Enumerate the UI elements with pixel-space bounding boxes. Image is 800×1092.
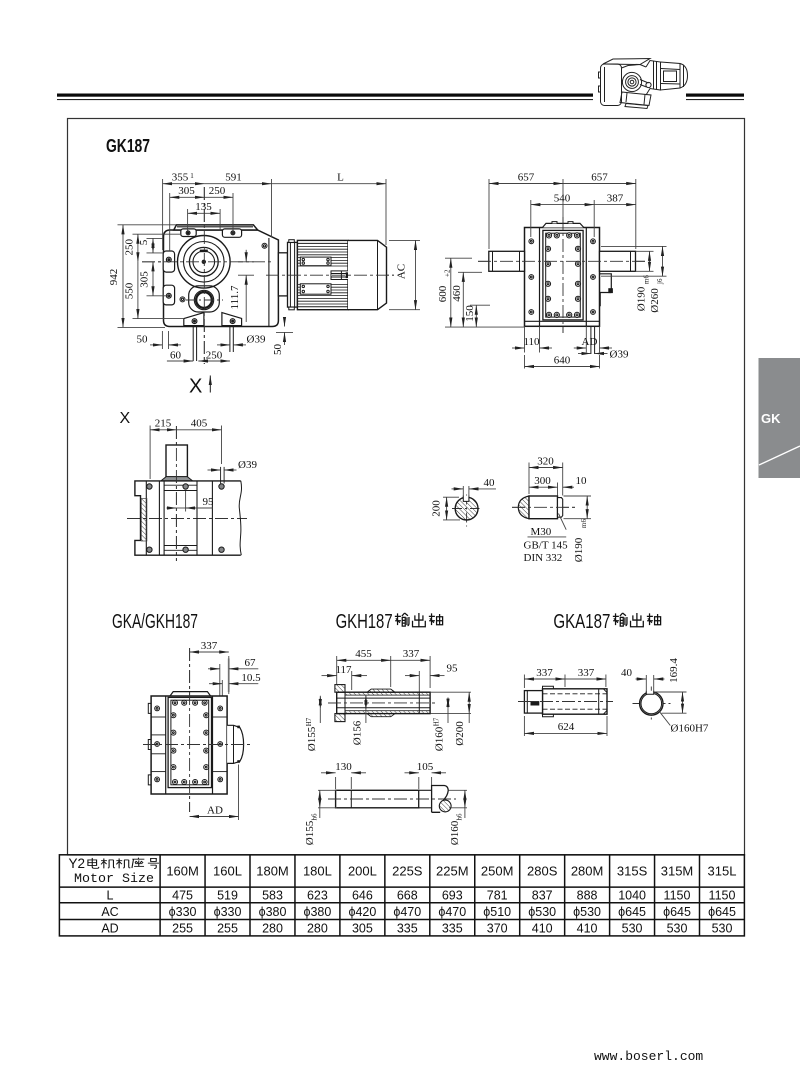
svg-text:130: 130 [335,761,352,773]
svg-text:335: 335 [397,921,418,935]
svg-text:m6: m6 [580,519,588,528]
svg-text:623: 623 [307,889,328,903]
svg-text:550: 550 [124,282,136,299]
svg-text:387: 387 [607,192,624,204]
svg-text:355: 355 [172,172,189,184]
svg-text:1: 1 [190,172,194,180]
svg-text:Ø39: Ø39 [247,334,266,346]
svg-text:337: 337 [578,667,595,679]
svg-text:200: 200 [430,500,442,517]
svg-text:169.4: 169.4 [668,658,680,683]
svg-text:410: 410 [577,921,598,935]
svg-text:250: 250 [206,349,223,361]
svg-text:Ø39: Ø39 [238,459,257,471]
svg-text:Ø39: Ø39 [610,349,629,361]
svg-text:1150: 1150 [709,889,736,903]
svg-text:Ø190: Ø190 [636,286,648,311]
svg-text:h6: h6 [456,813,464,821]
svg-text:117: 117 [335,664,352,676]
svg-text:Ø155: Ø155 [304,820,316,845]
svg-text:305: 305 [139,271,151,288]
svg-text:60: 60 [170,349,182,361]
svg-text:540: 540 [554,192,571,204]
svg-text:888: 888 [577,889,598,903]
svg-text:337: 337 [536,667,553,679]
svg-text:GK: GK [761,411,781,426]
svg-text:624: 624 [558,721,575,733]
svg-text:10.5: 10.5 [241,672,261,684]
svg-text:105: 105 [417,761,434,773]
svg-text:H7: H7 [433,717,441,726]
svg-text:X: X [189,376,202,398]
svg-text:591: 591 [225,172,242,184]
svg-text:ϕ645: ϕ645 [663,905,691,919]
svg-text:Ø160: Ø160 [449,820,461,845]
svg-text:ϕ470: ϕ470 [438,905,466,919]
svg-text:Ø156: Ø156 [352,720,364,745]
svg-text:640: 640 [554,354,571,366]
svg-text:180M: 180M [256,864,289,879]
svg-text:Ø160: Ø160 [433,726,445,751]
svg-text:180L: 180L [303,864,332,879]
svg-text:GKA/GKH187: GKA/GKH187 [112,611,198,633]
svg-text:40: 40 [621,667,633,679]
svg-text:225M: 225M [436,864,469,879]
svg-text:942: 942 [108,269,120,286]
svg-text:ϕ530: ϕ530 [573,905,601,919]
svg-text:H7: H7 [305,717,313,726]
svg-text:ϕ645: ϕ645 [618,905,646,919]
svg-text:280M: 280M [571,864,604,879]
svg-text:280: 280 [307,921,328,935]
svg-text:320: 320 [537,455,554,467]
svg-text:781: 781 [487,889,508,903]
svg-text:50: 50 [137,334,149,346]
svg-text:j6: j6 [656,278,664,285]
svg-text:530: 530 [712,921,733,935]
svg-text:280: 280 [262,921,283,935]
svg-text:40: 40 [484,477,496,489]
svg-text:ϕ380: ϕ380 [303,905,331,919]
svg-text:GKA187: GKA187 [553,611,610,633]
svg-text:110: 110 [523,336,540,348]
svg-text:646: 646 [352,889,373,903]
svg-text:h6: h6 [311,813,319,821]
svg-text:Ø155: Ø155 [306,726,318,751]
svg-text:95: 95 [203,496,215,508]
svg-text:657: 657 [518,171,535,183]
svg-text:200L: 200L [348,864,377,879]
svg-text:Ø260: Ø260 [649,288,661,313]
svg-text:Ø200: Ø200 [454,721,466,746]
svg-text:L: L [107,889,114,903]
svg-text:410: 410 [532,921,553,935]
svg-text:AC: AC [101,905,118,919]
svg-text:315S: 315S [617,864,648,879]
svg-text:460: 460 [451,285,463,302]
svg-text:ϕ530: ϕ530 [528,905,556,919]
svg-text:DIN 332: DIN 332 [524,552,563,564]
svg-text:ϕ330: ϕ330 [214,905,242,919]
svg-text:530: 530 [622,921,643,935]
svg-text:315L: 315L [708,864,737,879]
svg-text:ϕ420: ϕ420 [348,905,376,919]
svg-text:300: 300 [534,475,551,487]
svg-text:455: 455 [355,648,372,660]
svg-text:305: 305 [178,185,195,197]
svg-text:475: 475 [172,889,193,903]
svg-text:111.7: 111.7 [229,285,241,309]
svg-text:5: 5 [138,239,150,245]
svg-text:370: 370 [487,921,508,935]
svg-text:250M: 250M [481,864,514,879]
svg-text:Ø160H7: Ø160H7 [671,723,709,735]
svg-text:530: 530 [667,921,688,935]
svg-text:1150: 1150 [664,889,691,903]
svg-text:215: 215 [155,418,172,430]
svg-text:67: 67 [245,657,257,669]
svg-text:335: 335 [442,921,463,935]
svg-text:10: 10 [576,475,588,487]
svg-text:95: 95 [447,663,459,675]
svg-text:135: 135 [195,201,212,213]
svg-text:519: 519 [217,889,238,903]
svg-text:www.boserl.com: www.boserl.com [594,1049,703,1064]
svg-text:Y2: Y2 [69,856,86,871]
svg-text:160M: 160M [166,864,199,879]
svg-text:255: 255 [217,921,238,935]
svg-text:Motor Size: Motor Size [74,872,154,886]
svg-text:AC: AC [396,264,408,279]
svg-text:M30: M30 [531,526,552,538]
svg-text:337: 337 [403,648,420,660]
svg-text:AD: AD [582,336,598,348]
svg-text:GK187: GK187 [106,136,150,156]
svg-text:GB/T 145: GB/T 145 [524,540,569,552]
svg-text:600: 600 [437,285,449,302]
svg-text:315M: 315M [661,864,694,879]
svg-text:160L: 160L [213,864,242,879]
svg-text:ϕ330: ϕ330 [169,905,197,919]
svg-text:ϕ470: ϕ470 [393,905,421,919]
svg-text:305: 305 [352,921,373,935]
svg-text:ϕ510: ϕ510 [483,905,511,919]
svg-text:225S: 225S [392,864,423,879]
svg-text:1040: 1040 [618,889,646,903]
svg-text:255: 255 [172,921,193,935]
svg-text:250: 250 [124,239,136,256]
svg-text:Ø190: Ø190 [573,537,585,562]
svg-text:ϕ380: ϕ380 [259,905,287,919]
svg-text:583: 583 [262,889,283,903]
svg-text:ϕ645: ϕ645 [708,905,736,919]
svg-text:668: 668 [397,889,418,903]
svg-text:AD: AD [101,921,118,935]
svg-text:693: 693 [442,889,463,903]
svg-text:GKH187: GKH187 [336,611,393,633]
svg-text:250: 250 [209,185,226,197]
svg-text:50: 50 [272,344,284,356]
svg-text:X: X [120,410,131,427]
svg-text:405: 405 [191,418,208,430]
svg-text:AD: AD [207,805,223,817]
svg-text:837: 837 [532,889,553,903]
svg-text:337: 337 [201,640,218,652]
svg-text:657: 657 [591,171,608,183]
svg-text:+2: +2 [444,269,452,277]
svg-text:280S: 280S [527,864,558,879]
svg-text:150: 150 [464,305,476,322]
svg-text:L: L [337,172,344,184]
